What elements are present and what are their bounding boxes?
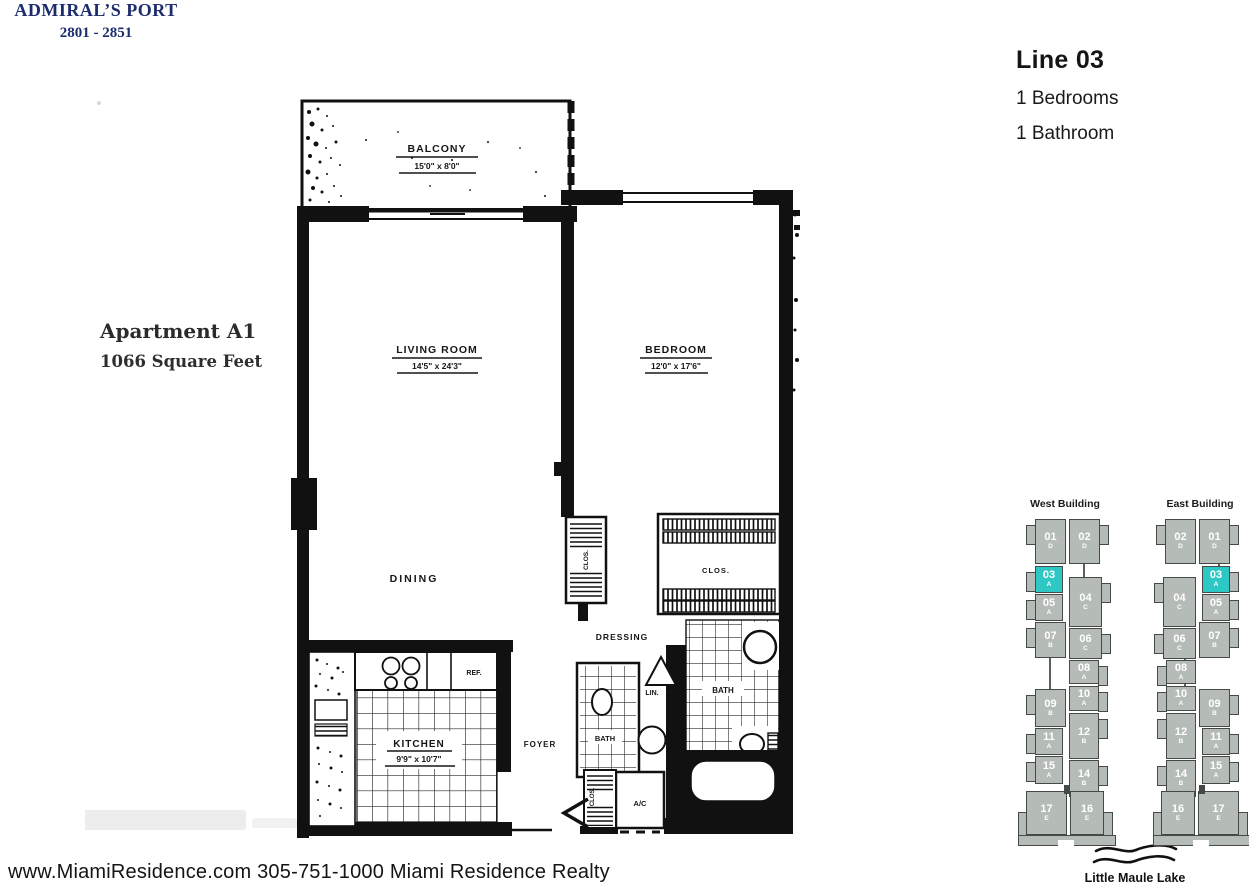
scan-smudge [85,101,298,830]
east-unit-15[interactable]: 15A [1202,756,1230,784]
unit-letter: D [1212,544,1217,551]
connector-line [1083,564,1085,577]
unit-letter: C [1083,646,1088,653]
unit-number: 09 [1208,699,1220,710]
west-building-title: West Building [1010,498,1120,514]
unit-letter: A [1047,744,1052,751]
unit-letter: A [1179,675,1184,682]
east-unit-04[interactable]: 04C [1163,577,1196,627]
balcony-tab [1229,628,1239,648]
ac-label: A/C [634,799,648,808]
living-room: LIVING ROOM 14'5" x 24'3" DINING [390,344,482,585]
unit-letter: A [1179,701,1184,708]
east-unit-08[interactable]: 08A [1166,660,1196,684]
balcony-tab [1098,692,1108,712]
west-unit-05[interactable]: 05A [1035,594,1063,621]
bedroom-dims: 12'0" x 17'6" [651,361,701,371]
unit-number: 15 [1210,761,1222,772]
unit-number: 08 [1078,663,1090,674]
connector-line [1049,658,1051,689]
lake: Little Maule Lake [1055,842,1215,885]
unit-letter: B [1048,711,1053,718]
unit-number: 08 [1175,663,1187,674]
dressing-label: DRESSING [596,632,648,642]
unit-number: 07 [1208,631,1220,642]
unit-number: 12 [1175,727,1187,738]
sink [639,727,666,754]
west-building-diagram: 01D03A05A07B09B11A15A17E02D04C06C08A10A1… [1010,514,1120,854]
unit-letter: A [1214,773,1219,780]
balcony-tab [1099,525,1109,545]
west-unit-10[interactable]: 10A [1069,686,1099,711]
balcony-tab [1098,766,1108,786]
unit-letter: C [1083,605,1088,612]
guest-bath-label: BATH [595,734,615,743]
unit-letter: E [1216,816,1220,823]
unit-number: 05 [1043,598,1055,609]
unit-number: 10 [1175,689,1187,700]
unit-letter: E [1085,816,1089,823]
east-unit-12[interactable]: 12B [1166,713,1196,759]
west-unit-04[interactable]: 04C [1069,577,1102,627]
linen-label: LIN. [645,690,658,697]
unit-number: 15 [1043,761,1055,772]
unit-letter: A [1214,744,1219,751]
unit-letter: B [1212,643,1217,650]
west-unit-08[interactable]: 08A [1069,660,1099,684]
balcony: BALCONY 15'0" x 8'0" [302,101,571,211]
unit-number: 11 [1210,732,1222,743]
apartment-area: 1066 Square Feet [100,352,263,371]
unit-number: 17 [1212,804,1224,815]
balcony-tab [1229,762,1239,782]
balcony-tab [1098,666,1108,686]
unit-letter: E [1176,816,1180,823]
unit-letter: C [1177,605,1182,612]
property-name: ADMIRAL’S PORT [6,0,186,21]
east-unit-01[interactable]: 01D [1199,519,1230,564]
bathtub [690,760,776,802]
east-building: East Building 02D04C06C08A10A12B14B16E01… [1145,498,1249,854]
unit-letter: B [1179,739,1184,746]
unit-number: 04 [1079,593,1091,604]
west-unit-15[interactable]: 15A [1035,756,1063,784]
unit-letter: B [1179,781,1184,788]
west-unit-12[interactable]: 12B [1069,713,1099,759]
sink [744,631,776,663]
unit-number: 12 [1078,727,1090,738]
west-unit-09[interactable]: 09B [1035,689,1066,727]
bedroom-label: BEDROOM [645,344,707,356]
balcony-label: BALCONY [408,143,467,155]
kitchen: REF. KITCHEN 9'9" x 10'7" [309,652,497,826]
waves-icon [1090,842,1180,870]
unit-number: 17 [1040,804,1052,815]
east-unit-07[interactable]: 07B [1199,622,1230,658]
entry-closet-label: CLOS. [590,788,596,807]
west-unit-01[interactable]: 01D [1035,519,1066,564]
unit-letter: B [1212,711,1217,718]
unit-number: 09 [1044,699,1056,710]
unit-letter: B [1082,739,1087,746]
balcony-tab [1229,695,1239,715]
hall-closet: CLOS. [566,517,606,603]
unit-letter: C [1177,646,1182,653]
unit-number: 01 [1208,532,1220,543]
foyer-label: FOYER [524,740,557,749]
balcony-tab [1229,525,1239,545]
east-building-diagram: 02D04C06C08A10A12B14B16E01D03A05A07B09B1… [1145,514,1249,854]
unit-number: 16 [1172,804,1184,815]
unit-number: 02 [1078,532,1090,543]
west-unit-11[interactable]: 11A [1035,728,1063,755]
balcony-tab [1229,734,1239,754]
line-bedrooms: 1 Bedrooms [1016,88,1118,110]
unit-number: 04 [1173,593,1185,604]
base-notch [1193,840,1209,847]
balcony-tab [1229,572,1239,592]
property-header: ADMIRAL’S PORT 2801 - 2851 [6,0,186,42]
east-unit-06[interactable]: 06C [1163,628,1196,659]
west-unit-16[interactable]: 16E [1070,791,1104,835]
main-bath-label: BATH [712,686,734,695]
unit-number: 01 [1044,532,1056,543]
east-unit-05[interactable]: 05A [1202,594,1230,621]
entry-closet: CLOS. [584,770,616,828]
footer-contact: www.MiamiResidence.com 305-751-1000 Miam… [8,861,610,884]
unit-number: 14 [1078,769,1090,780]
unit-number: 14 [1175,769,1187,780]
kitchen-dims: 9'9" x 10'7" [396,754,441,764]
line-bathrooms: 1 Bathroom [1016,123,1118,145]
balcony-tab [1101,583,1111,603]
unit-letter: A [1047,582,1052,589]
guest-bath: BATH LIN. [577,657,676,777]
line-title: Line 03 [1016,46,1118,75]
hall-closet-label: CLOS. [583,550,590,570]
west-unit-03[interactable]: 03A [1035,566,1063,593]
west-building: West Building 01D03A05A07B09B11A15A17E02… [1010,498,1120,854]
unit-number: 03 [1043,570,1055,581]
unit-number: 07 [1044,631,1056,642]
refrigerator-label: REF. [466,670,481,677]
east-building-title: East Building [1145,498,1249,514]
floor-plan: Apartment A1 1066 Square Feet BALCONY 15… [85,85,810,850]
west-unit-06[interactable]: 06C [1069,628,1102,659]
unit-letter: D [1178,544,1183,551]
balcony-dims: 15'0" x 8'0" [414,161,459,171]
unit-letter: A [1214,610,1219,617]
east-unit-11[interactable]: 11A [1202,728,1230,755]
unit-number: 06 [1079,634,1091,645]
apartment-name: Apartment A1 [99,319,256,343]
balcony-tab [1098,719,1108,739]
unit-letter: D [1082,544,1087,551]
unit-letter: B [1048,643,1053,650]
unit-letter: B [1082,781,1087,788]
east-unit-16[interactable]: 16E [1161,791,1195,835]
center-bar [1199,785,1205,794]
living-room-dims: 14'5" x 24'3" [412,361,462,371]
living-room-label: LIVING ROOM [396,344,478,356]
unit-letter: A [1082,701,1087,708]
main-bath: BATH [684,620,780,826]
line-info: Line 03 1 Bedrooms 1 Bathroom [1016,46,1118,145]
balcony-tab [1229,600,1239,620]
east-unit-02[interactable]: 02D [1165,519,1196,564]
unit-letter: E [1044,816,1048,823]
bedroom-closet-label: CLOS. [702,566,730,575]
west-unit-07[interactable]: 07B [1035,622,1066,658]
unit-number: 02 [1174,532,1186,543]
east-unit-03[interactable]: 03A [1202,566,1230,593]
east-unit-10[interactable]: 10A [1166,686,1196,711]
unit-letter: A [1082,675,1087,682]
property-address-range: 2801 - 2851 [6,25,186,42]
unit-letter: A [1047,773,1052,780]
base-notch [1058,840,1074,847]
west-unit-17[interactable]: 17E [1026,791,1067,835]
lake-label: Little Maule Lake [1055,871,1215,885]
unit-number: 03 [1210,570,1222,581]
ac-closet: A/C [616,772,664,832]
east-unit-17[interactable]: 17E [1198,791,1239,835]
dining-label: DINING [390,573,439,585]
unit-letter: A [1047,610,1052,617]
west-unit-02[interactable]: 02D [1069,519,1100,564]
unit-number: 06 [1173,634,1185,645]
unit-number: 16 [1081,804,1093,815]
east-unit-09[interactable]: 09B [1199,689,1230,727]
unit-number: 11 [1043,732,1055,743]
kitchen-label: KITCHEN [393,739,444,750]
bedroom: BEDROOM 12'0" x 17'6" [640,344,712,373]
unit-number: 05 [1210,598,1222,609]
bedroom-closet: CLOS. [658,514,780,614]
balcony-tab [1101,634,1111,654]
unit-number: 10 [1078,689,1090,700]
unit-letter: A [1214,582,1219,589]
unit-letter: D [1048,544,1053,551]
center-bar [1064,785,1070,794]
